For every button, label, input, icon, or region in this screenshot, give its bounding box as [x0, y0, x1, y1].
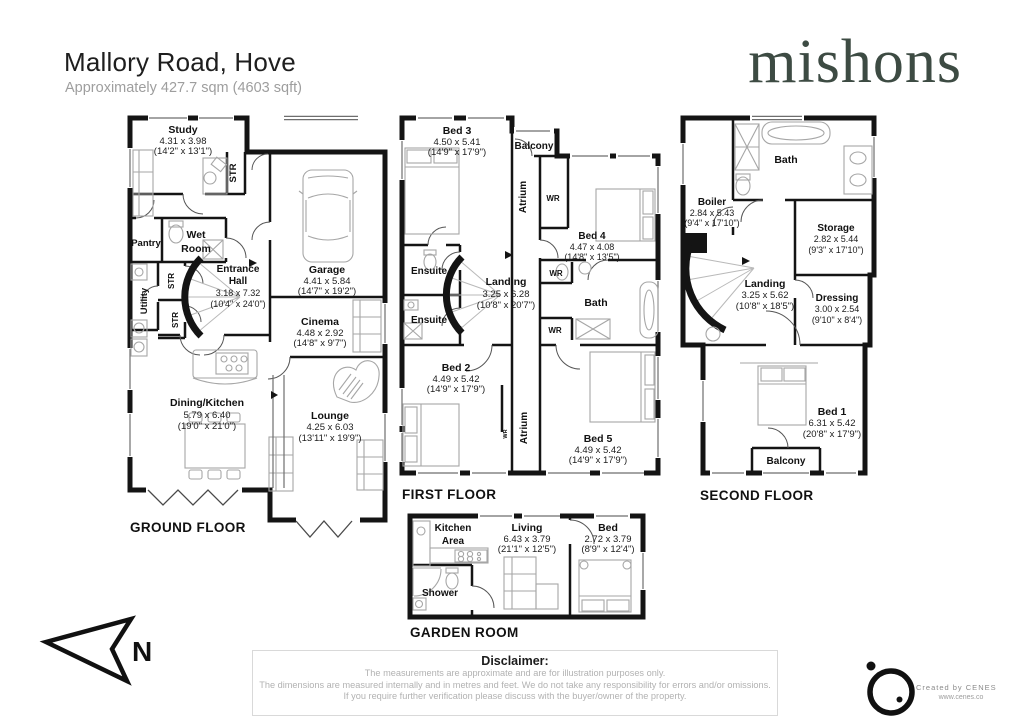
disclaimer-title: Disclaimer:: [253, 654, 777, 668]
room-dims-ft: (8'9" x 12'4"): [581, 544, 634, 555]
room-dims-ft: (9'10" x 8'4"): [812, 315, 862, 325]
room-dims-ft: (14'9" x 17'9"): [569, 455, 627, 466]
disclaimer-line: The dimensions are measured internally a…: [253, 680, 777, 692]
compass-north-label: N: [132, 636, 152, 667]
room-dims-ft: (21'1" x 12'5"): [498, 544, 556, 555]
room-label-lounge: Lounge: [311, 410, 349, 422]
glass-partition: [271, 375, 284, 488]
room-label-storage: Storage: [817, 223, 855, 234]
room-dims-ft: (14'7" x 19'2"): [298, 286, 356, 297]
room-dims-ft: (10'4" x 24'0"): [210, 299, 265, 309]
bed-icon: [403, 404, 459, 466]
room-label-bath: Bath: [584, 297, 607, 309]
walls: [402, 118, 658, 473]
car-icon: [299, 170, 357, 262]
room-label-dining-kitchen: Dining/Kitchen: [170, 397, 244, 409]
room-dims-m: 3.25 x 5.62: [741, 290, 788, 301]
room-label-bath: Bath: [774, 154, 797, 166]
room-label-bed1: Bed 1: [818, 406, 847, 418]
desk-icon: [203, 157, 227, 194]
north-arrow: N: [36, 608, 156, 703]
toilet-icon: [169, 221, 183, 243]
room-label-entrance-hall: Entrance: [217, 264, 260, 275]
room-dims-ft: (13'11" x 19'9"): [298, 433, 361, 444]
compass-arrow-icon: [46, 619, 131, 681]
room-label-bed4: Bed 4: [578, 231, 606, 242]
room-label-kitchen-area: Kitchen: [435, 523, 472, 534]
room-label-atrium: Atrium: [518, 181, 529, 213]
room-label-wr: WR: [549, 269, 563, 278]
room-dims-ft: (14'8" x 9'7"): [293, 338, 346, 349]
room-dims-ft: (9'3" x 17'10"): [808, 245, 863, 255]
room-label-living: Living: [512, 522, 543, 534]
doors: [713, 200, 813, 448]
room-dims-ft: (10'8" x 18'5"): [736, 301, 794, 312]
room-label-pantry: Pantry: [131, 238, 161, 249]
credit-url: www.cenes.co: [916, 694, 1006, 701]
room-dims-ft: (14'9" x 17'9"): [427, 384, 485, 395]
page-title: Mallory Road, Hove: [64, 47, 296, 78]
room-label-wet-room: Wet: [186, 229, 206, 241]
room-label-garage: Garage: [309, 264, 345, 276]
room-label-balcony: Balcony: [767, 456, 806, 467]
floor-label-garden: GARDEN ROOM: [410, 625, 519, 640]
piano-icon: [333, 361, 379, 403]
bed-icon: [590, 352, 655, 422]
bed-icon: [405, 148, 459, 234]
room-dims-ft: (20'8" x 17'9"): [803, 429, 861, 440]
room-dims-ft: (9'4" x 17'10"): [684, 218, 739, 228]
room-label-shower: Shower: [422, 588, 458, 599]
room-label-ensuite: Ensuite: [411, 315, 448, 326]
floor-label-first: FIRST FLOOR: [402, 487, 496, 502]
room-dims-m: 3.25 x 6.28: [482, 289, 529, 300]
room-label-utility: Utility: [139, 287, 150, 314]
room-label-str: STR: [171, 312, 180, 328]
cenes-logo-icon: [860, 656, 922, 718]
floor-label-second: SECOND FLOOR: [700, 488, 814, 503]
room-dims-m: 4.47 x 4.08: [570, 242, 615, 252]
room-dims-ft: (19'0" x 21'0"): [178, 421, 236, 432]
sofa-icon: [504, 557, 558, 609]
room-dims-m: 2.84 x 5.43: [690, 208, 735, 218]
direction-arrow: [271, 391, 278, 399]
disclaimer-line: If you require further verification plea…: [253, 691, 777, 703]
floor-label-ground: GROUND FLOOR: [130, 520, 246, 535]
credit-text: Created by CENES: [916, 683, 997, 692]
room-labels: Study 4.31 x 3.98 (14'2" x 13'1") STR Pa…: [131, 124, 361, 444]
room-label-study: Study: [168, 124, 197, 136]
disclaimer-box: Disclaimer: The measurements are approxi…: [252, 650, 778, 716]
agency-logo: mishons: [748, 31, 962, 93]
sink-icon: [131, 264, 147, 280]
first-floor-plan: Bed 3 4.50 x 5.41 (14'9" x 17'9") Balcon…: [393, 106, 665, 508]
room-label-landing: Landing: [745, 278, 786, 290]
room-dims-ft: (10'8" x 20'7"): [477, 300, 535, 311]
room-dims-m: 3.00 x 2.54: [815, 304, 860, 314]
room-label-atrium: Atrium: [519, 412, 530, 444]
room-label-dressing: Dressing: [816, 293, 859, 304]
room-label-str: STR: [167, 273, 176, 289]
room-label-entrance-hall: Hall: [229, 276, 248, 287]
ground-floor-plan: Study 4.31 x 3.98 (14'2" x 13'1") STR Pa…: [125, 108, 403, 540]
room-dims-m: 3.18 x 7.32: [216, 288, 261, 298]
room-label-str: STR: [228, 163, 239, 182]
room-label-bed3: Bed 3: [443, 125, 472, 137]
room-label-balcony: Balcony: [515, 141, 554, 152]
room-label-wr: WR: [503, 429, 509, 438]
floorplan-page: Mallory Road, Hove Approximately 427.7 s…: [0, 0, 1024, 724]
bath-fixtures: [735, 122, 872, 195]
page-subtitle: Approximately 427.7 sqm (4603 sqft): [65, 80, 302, 96]
room-label-landing: Landing: [486, 276, 527, 288]
room-label-bed: Bed: [598, 522, 618, 534]
room-label-bed5: Bed 5: [584, 433, 613, 445]
second-floor-plan: Bath Boiler 2.84 x 5.43 (9'4" x 17'10") …: [676, 106, 880, 510]
lounge-sofa-icons: [269, 437, 383, 491]
bed-icon: [579, 560, 631, 612]
cinema-sofa-icon: [353, 300, 381, 352]
room-label-wr: WR: [548, 326, 562, 335]
bed-icon: [740, 363, 818, 425]
sofa-icon: [133, 150, 153, 216]
room-dims-ft: (14'2" x 13'1"): [154, 146, 212, 157]
room-label-wet-room: Room: [181, 243, 211, 255]
garden-room-plan: Kitchen Area Living 6.43 x 3.79 (21'1" x…: [403, 508, 651, 640]
room-label-wr: WR: [546, 194, 560, 203]
room-dims-ft: (14'8" x 13'5"): [564, 252, 619, 262]
room-dims-m: 4.25 x 6.03: [306, 422, 353, 433]
room-dims-m: 5.79 x 6.40: [183, 410, 230, 421]
kitchen-island-icon: [193, 350, 257, 384]
room-label-boiler: Boiler: [698, 197, 726, 208]
room-label-bed2: Bed 2: [442, 362, 471, 374]
room-dims-m: 6.31 x 5.42: [808, 418, 855, 429]
windows: [126, 114, 389, 525]
room-label-kitchen-area: Area: [442, 536, 465, 547]
room-dims-ft: (14'9" x 17'9"): [428, 147, 486, 158]
room-label-cinema: Cinema: [301, 316, 339, 328]
disclaimer-line: The measurements are approximate and are…: [253, 668, 777, 680]
room-label-ensuite: Ensuite: [411, 266, 448, 277]
room-dims-m: 2.82 x 5.44: [814, 234, 859, 244]
